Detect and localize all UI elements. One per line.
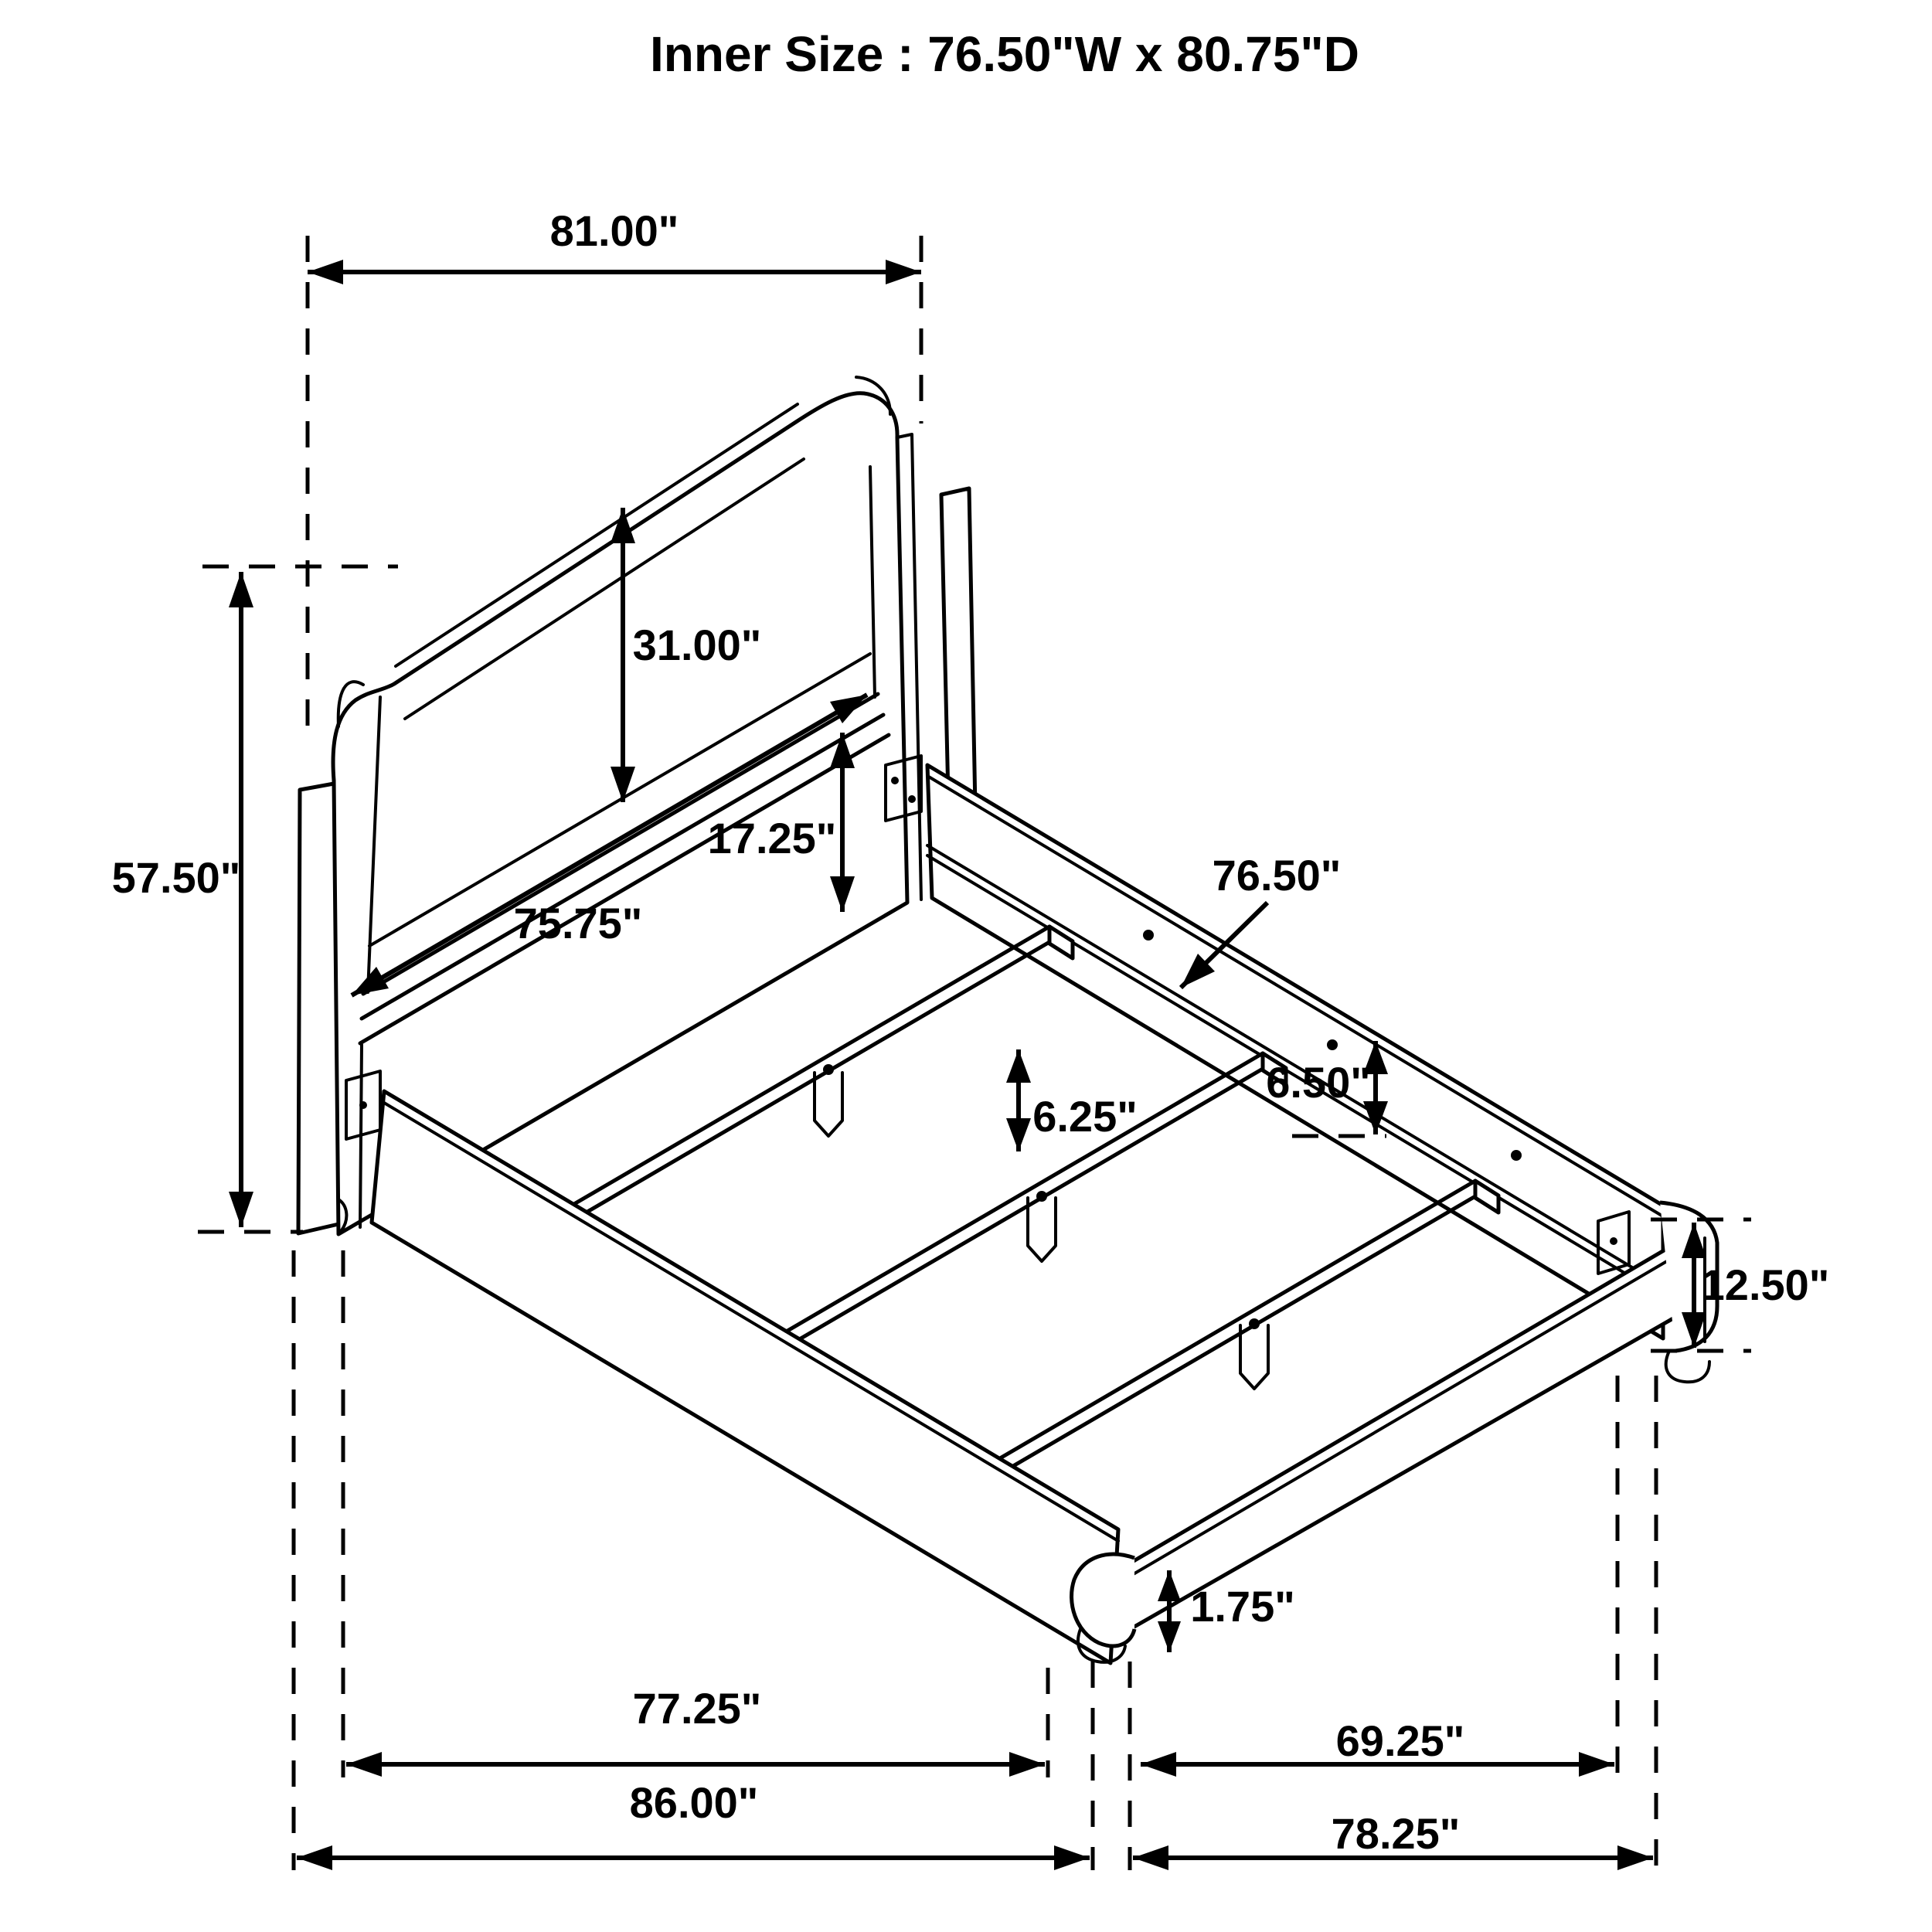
dim-label-panel-height: 31.00" bbox=[633, 621, 762, 669]
rail-screw-hole bbox=[1327, 1039, 1338, 1050]
footboard-foot-far bbox=[1666, 1351, 1709, 1382]
arrowhead bbox=[1579, 1752, 1614, 1777]
dim-label-floor-to-rail-top: 17.25" bbox=[708, 814, 837, 862]
bracket-screw-hole bbox=[359, 1101, 367, 1109]
dim-label-headboard-width: 81.00" bbox=[550, 206, 679, 255]
arrowhead bbox=[1141, 1752, 1176, 1777]
bracket-screw-hole bbox=[891, 777, 899, 784]
dim-label-foot-height: 1.75" bbox=[1190, 1582, 1295, 1631]
slat-3-leg-b bbox=[1240, 1325, 1268, 1389]
arrowhead bbox=[1617, 1845, 1653, 1870]
bed-dimension-diagram: Inner Size : 76.50"W x 80.75"D 81.00" 57… bbox=[0, 0, 1932, 1932]
footboard-top-edge bbox=[1131, 1259, 1671, 1576]
arrowhead bbox=[229, 572, 253, 607]
arrowhead bbox=[886, 260, 921, 284]
diagram-title: Inner Size : 76.50"W x 80.75"D bbox=[650, 26, 1359, 82]
slat-screw-hole bbox=[1249, 1318, 1260, 1329]
dim-label-leg-to-leg-length: 77.25" bbox=[633, 1684, 762, 1733]
dim-label-footboard-inner-width: 69.25" bbox=[1336, 1716, 1465, 1765]
arrowhead bbox=[229, 1192, 253, 1227]
dim-label-overall-width: 78.25" bbox=[1332, 1809, 1461, 1858]
rail-screw-hole bbox=[1511, 1150, 1522, 1161]
dim-label-slat-length: 76.50" bbox=[1213, 851, 1342, 900]
bracket-screw-hole bbox=[908, 795, 916, 803]
arrowhead bbox=[1054, 1845, 1090, 1870]
side-rail-left-edge bbox=[384, 1103, 1118, 1541]
slat-screw-hole bbox=[823, 1064, 834, 1075]
dim-label-side-rail-height: 12.50" bbox=[1701, 1260, 1830, 1309]
bracket-screw-hole bbox=[1610, 1237, 1617, 1245]
dim-label-overall-length: 86.00" bbox=[630, 1778, 759, 1827]
bed-dimension-diagram-page: Inner Size : 76.50"W x 80.75"D 81.00" 57… bbox=[0, 0, 1932, 1932]
arrowhead bbox=[1158, 1621, 1181, 1652]
slat-2-leg-b bbox=[1028, 1198, 1056, 1261]
dim-label-rail-top-to-slat: 6.50" bbox=[1266, 1058, 1371, 1107]
slat-1-leg-b bbox=[815, 1073, 842, 1136]
headboard-back-left-leg bbox=[298, 784, 338, 1233]
dim-label-slat-leg-height: 6.25" bbox=[1032, 1092, 1138, 1141]
dim-label-headboard-height: 57.50" bbox=[112, 853, 241, 902]
arrowhead bbox=[1006, 1049, 1031, 1083]
arrowhead bbox=[297, 1845, 332, 1870]
arrowhead bbox=[346, 1752, 382, 1777]
side-rail-left bbox=[372, 1091, 1118, 1663]
slat-screw-hole bbox=[1036, 1191, 1047, 1202]
footboard-face bbox=[1122, 1247, 1679, 1634]
arrowhead bbox=[1009, 1752, 1045, 1777]
arrowhead bbox=[308, 260, 343, 284]
side-rail-left-face bbox=[372, 1091, 1118, 1663]
arrowhead bbox=[1006, 1118, 1031, 1151]
arrowhead bbox=[1133, 1845, 1168, 1870]
rail-screw-hole bbox=[1143, 930, 1154, 940]
dim-label-headboard-rail-length: 75.75" bbox=[514, 899, 643, 947]
